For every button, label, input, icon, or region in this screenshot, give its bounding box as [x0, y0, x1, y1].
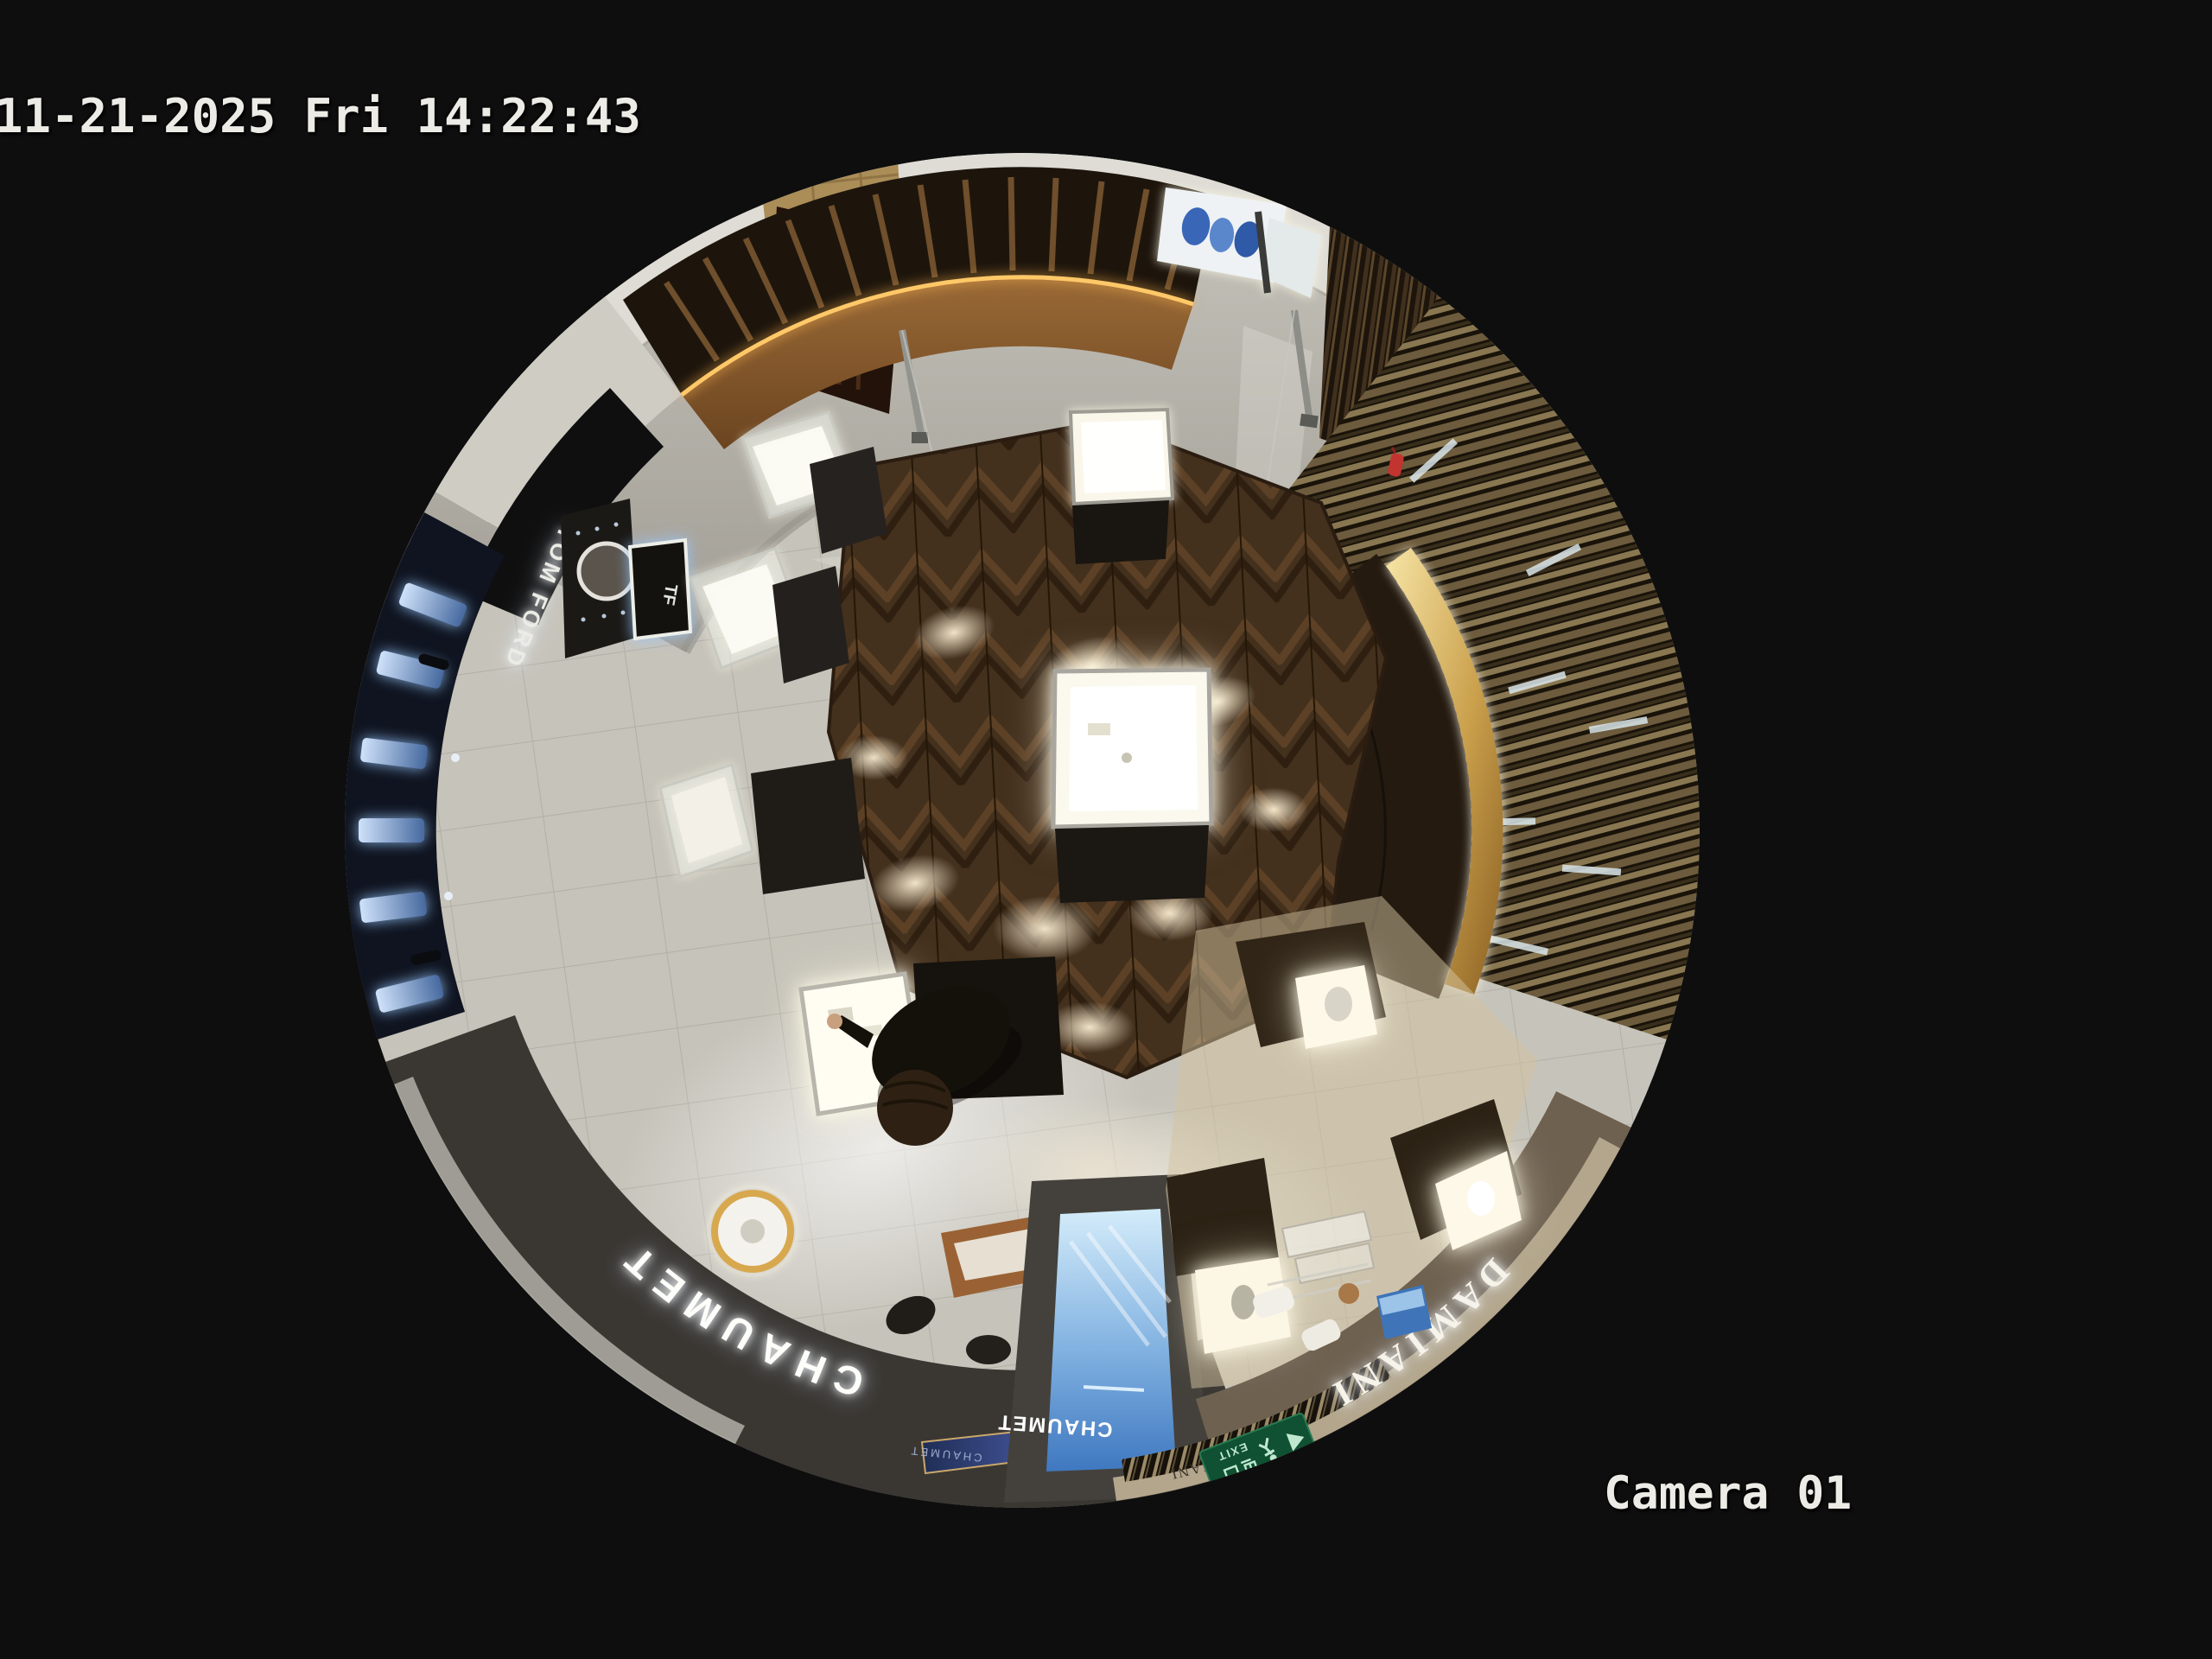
center-display-case — [1053, 670, 1211, 827]
jewel-pedestal — [709, 1188, 796, 1274]
tf-logo-frame: TF — [630, 540, 690, 639]
wood-stool — [1338, 1283, 1359, 1304]
fisheye-scene: TOM FORD TF — [345, 153, 1700, 1508]
tf-logo-text: TF — [658, 582, 681, 607]
cctv-viewer: 11-21-2025 Fri 14:22:43 Camera 01 — [0, 0, 2212, 1659]
case-base — [1055, 825, 1209, 903]
chair — [966, 1335, 1011, 1364]
case-base — [1072, 500, 1169, 564]
round-mirror — [579, 543, 634, 599]
fisheye-camera-view: TOM FORD TF — [345, 153, 1700, 1508]
timestamp-overlay: 11-21-2025 Fri 14:22:43 — [0, 89, 641, 143]
person-hand — [827, 1014, 842, 1029]
upper-display-case — [1071, 410, 1173, 504]
